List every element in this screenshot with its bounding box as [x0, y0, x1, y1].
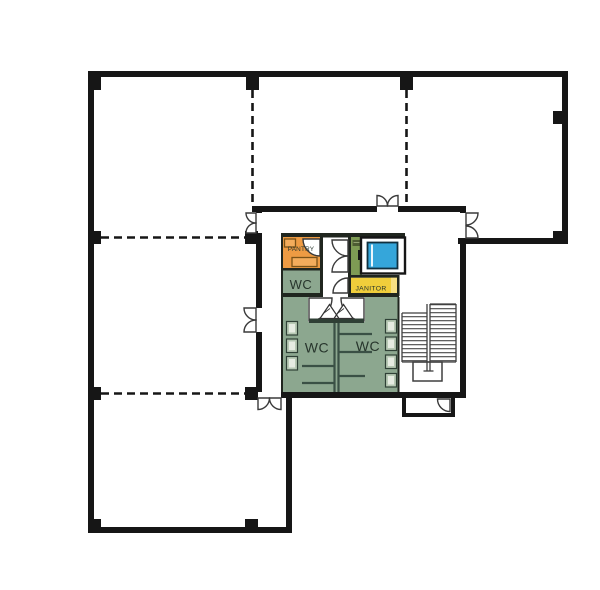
north-wall [88, 71, 568, 77]
core-south-wall-main [281, 392, 466, 398]
core-east-wall-stub [460, 206, 466, 213]
core-west-upper-door-leaf [246, 223, 256, 233]
column [246, 77, 259, 90]
column [400, 77, 413, 90]
pantry-corridor-wall [320, 237, 323, 293]
shaft-door-leaf-lower [332, 256, 348, 272]
south-wall-left-wing [88, 527, 292, 533]
core-east-door-leaf [466, 226, 478, 238]
wc-main-east-edge [398, 297, 400, 392]
column [553, 231, 566, 244]
pantry-table [292, 258, 317, 267]
pantry-label: PANTRY [288, 246, 315, 253]
bumpout-south-wall [402, 413, 455, 417]
janitor-east-wall [397, 275, 400, 296]
core-south-door-leaf [270, 398, 282, 410]
wc-fixture-inner [388, 340, 394, 349]
elevator-call-tick [358, 250, 362, 260]
core-north-wall-right [398, 206, 466, 212]
wc-right-label: WC [356, 338, 381, 354]
column [553, 111, 566, 124]
wc-left-label: WC [305, 340, 330, 356]
wc-fixture-inner [388, 358, 394, 367]
pantry-south-wall [283, 268, 320, 271]
column [245, 519, 258, 532]
core-south-wall-left [252, 392, 258, 398]
wc-fixture-inner [289, 342, 295, 351]
core-north-door-leaf [377, 196, 388, 207]
core-north-wall-left [252, 206, 377, 212]
core-west-mid-door-leaf [244, 308, 256, 320]
core-east-wall-main [460, 238, 466, 392]
janitor-door-leaf [333, 278, 348, 293]
floor-plan-page: PANTRY WC JANITOR WC WC [0, 0, 600, 590]
wc-fixtures-left [287, 322, 298, 371]
janitor-label: JANITOR [355, 286, 386, 293]
janitor-north-wall [348, 275, 399, 278]
wc-fixture-inner [289, 324, 295, 333]
vanity-counter [309, 319, 364, 324]
column [88, 77, 101, 90]
east-wall-right-wing [562, 71, 568, 244]
wc-fixture-inner [289, 359, 295, 368]
wc-fixture-inner [388, 322, 394, 331]
core-west-mid-door-leaf [244, 320, 256, 332]
stair-flight-left [402, 313, 427, 362]
column [88, 519, 101, 532]
south-bumpout-room [402, 398, 455, 417]
wc-upper-south-wall [281, 293, 323, 297]
east-wall-left-wing [286, 396, 292, 533]
core-south-door-leaf [258, 398, 270, 410]
core-north-door-leaf [388, 196, 399, 207]
core-west-wall-low [256, 332, 262, 392]
bumpout-east-wall [451, 398, 455, 417]
core-west-wall-stub [256, 206, 262, 213]
south-wall-right-wing [458, 238, 568, 244]
stair-flight-right [430, 304, 456, 362]
core-east-door-leaf [466, 213, 478, 225]
core-west-upper-door-leaf [246, 213, 256, 223]
core-west-wall-mid [256, 233, 262, 308]
core-room-block [281, 233, 405, 392]
wc-upper-label: WC [290, 277, 313, 292]
office-floor-plan: PANTRY WC JANITOR WC WC [0, 0, 600, 590]
wc-fixture-inner [388, 376, 394, 385]
staircase [402, 304, 456, 381]
janitor-closet-strip [391, 278, 397, 293]
shaft-door-leaf-upper [332, 240, 348, 256]
column [88, 387, 101, 400]
bumpout-door-leaf [438, 399, 451, 412]
column [88, 231, 101, 244]
west-wall [88, 71, 94, 533]
shaft-panel [353, 240, 361, 246]
janitor-south-wall [348, 293, 399, 297]
